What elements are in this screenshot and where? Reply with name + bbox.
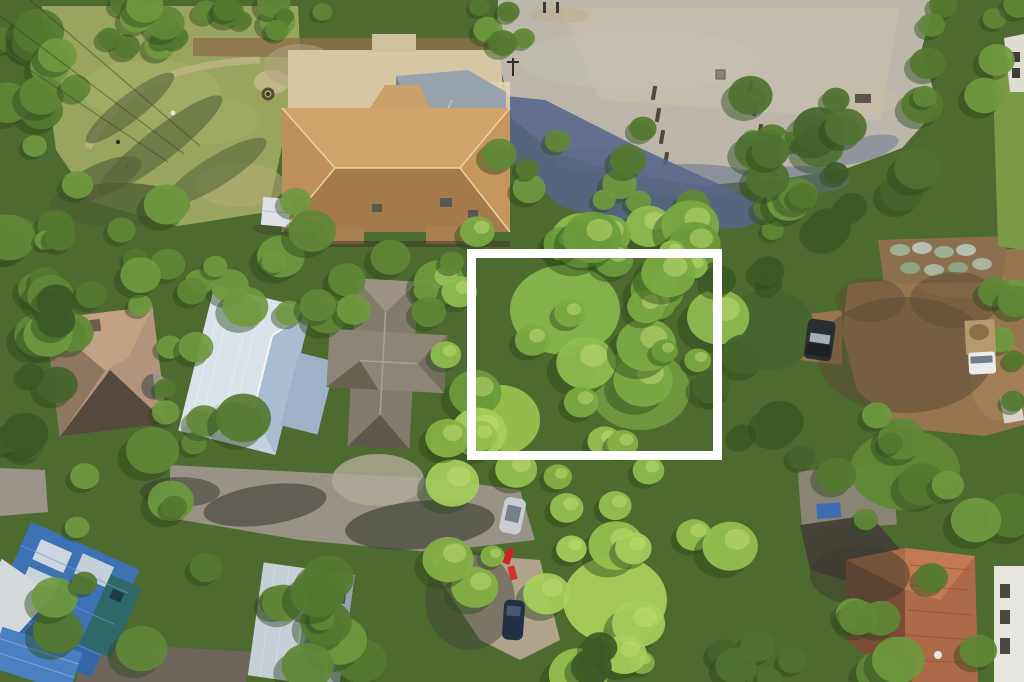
- tree-blob: [633, 607, 657, 627]
- window: [1000, 638, 1010, 654]
- tree-blob: [620, 640, 640, 657]
- aerial-photo-stage: [0, 0, 1024, 682]
- tree-blob: [477, 425, 492, 438]
- tree-blob: [728, 76, 772, 115]
- tree-blob: [751, 256, 784, 285]
- pad-stub: [372, 34, 416, 52]
- tree-blob: [872, 637, 925, 682]
- tree-blob: [918, 13, 945, 37]
- tree-blob: [62, 171, 93, 199]
- tree-blob: [568, 539, 582, 551]
- fence-post: [543, 2, 546, 13]
- car-windows: [506, 605, 521, 616]
- tree-blob: [22, 135, 47, 157]
- tree-blob: [497, 2, 520, 22]
- manhole-cover: [716, 70, 725, 79]
- tree-blob: [179, 332, 214, 363]
- blue-tarp: [816, 502, 841, 519]
- tree-blob: [223, 287, 269, 327]
- tree-blob: [443, 345, 457, 357]
- tree-blob: [1, 413, 48, 454]
- tree-blob: [312, 3, 332, 20]
- tree-blob: [262, 251, 287, 273]
- tree-blob: [516, 159, 539, 179]
- tree-blob: [154, 379, 176, 398]
- tree-blob: [722, 334, 768, 374]
- tree-blob: [932, 471, 964, 500]
- gravel-path-patch: [332, 454, 424, 506]
- tree-blob: [18, 364, 45, 387]
- tree-blob: [964, 78, 1004, 114]
- rooftop-hvac-unit: [372, 204, 382, 212]
- tree-blob: [612, 495, 627, 507]
- tree-blob: [45, 224, 75, 250]
- tree-blob: [662, 343, 674, 353]
- tree-blob: [161, 496, 187, 518]
- tree-blob: [38, 38, 77, 72]
- tree-blob: [751, 135, 789, 168]
- tree-blob: [289, 210, 336, 252]
- tree-blob: [70, 463, 99, 489]
- tree-blob: [412, 296, 447, 327]
- tree-blob: [76, 281, 107, 308]
- tree-blob: [778, 649, 806, 674]
- tree-blob: [144, 184, 190, 224]
- tree-blob: [490, 548, 501, 557]
- tree-blob: [337, 294, 372, 325]
- tree-blob: [894, 148, 941, 189]
- tree-blob: [690, 229, 713, 249]
- tree-blob: [216, 394, 271, 443]
- gravel-dirt-patch: [530, 7, 590, 23]
- tree-blob: [177, 278, 207, 305]
- white-flatbed-truck: [964, 319, 997, 374]
- tree-blob: [1001, 391, 1024, 412]
- fence-post: [556, 2, 559, 13]
- tree-blob: [190, 553, 223, 582]
- tree-blob: [915, 563, 948, 592]
- tree-blob: [37, 304, 75, 338]
- tree-blob: [126, 427, 179, 474]
- tree-blob: [72, 572, 98, 595]
- tree-blob: [470, 572, 491, 590]
- tree-blob: [817, 457, 857, 492]
- white-building-right: [994, 566, 1024, 682]
- dark-suv: [803, 318, 836, 362]
- dark-blue-car: [502, 599, 526, 640]
- tree-blob: [789, 183, 818, 208]
- tree-blob: [756, 401, 804, 443]
- windshield: [970, 355, 992, 363]
- gravel-worn-area: [520, 30, 760, 90]
- picnic-table: [855, 94, 871, 103]
- tree-blob: [443, 424, 463, 441]
- tree-blob: [488, 30, 517, 56]
- tree-blob: [555, 468, 568, 479]
- tree-blob: [203, 256, 227, 277]
- tree-blob: [695, 352, 707, 362]
- tree-blob: [692, 370, 730, 404]
- roof-vent: [934, 651, 942, 659]
- tree-blob: [825, 108, 867, 145]
- tree-blob: [951, 498, 1001, 542]
- tree-blob: [960, 634, 998, 667]
- tree-blob: [443, 544, 466, 563]
- tree-blob: [542, 579, 563, 597]
- tree-blob: [690, 524, 706, 538]
- window: [1000, 584, 1010, 598]
- tree-blob: [580, 344, 607, 367]
- tree-blob: [788, 445, 816, 470]
- window: [1000, 610, 1010, 624]
- tree-blob: [979, 44, 1015, 76]
- tree-blob: [291, 569, 345, 617]
- white-object-dot: [171, 111, 176, 116]
- street-stub-left: [0, 468, 48, 516]
- tree-blob: [120, 257, 161, 293]
- tree-blob: [152, 400, 180, 424]
- tree-blob: [482, 139, 517, 170]
- tree-blob: [854, 509, 878, 531]
- tree-blob: [447, 466, 471, 486]
- tree-blob: [620, 434, 634, 446]
- tree-blob: [107, 218, 135, 243]
- tree-blob: [645, 461, 659, 473]
- tree-blob: [806, 208, 851, 247]
- tree-blob: [1003, 350, 1024, 369]
- tree-blob: [529, 329, 545, 343]
- tree-blob: [328, 263, 366, 296]
- rooftop-hvac-unit: [440, 198, 452, 207]
- tree-blob: [299, 289, 336, 321]
- tree-blob: [65, 517, 90, 539]
- tree-blob: [61, 75, 91, 101]
- tree-blob: [862, 402, 892, 428]
- tree-blob: [440, 252, 464, 273]
- tree-blob: [116, 626, 168, 671]
- tree-blob: [265, 20, 289, 41]
- tree-blob: [593, 190, 616, 210]
- person-dot: [116, 140, 120, 144]
- tree-blob: [586, 219, 612, 241]
- tree-blob: [545, 130, 570, 152]
- tree-blob: [563, 497, 578, 510]
- tree-blob: [823, 162, 848, 184]
- tree-blob: [474, 221, 490, 234]
- tree-blob: [630, 537, 646, 551]
- aerial-photo: [0, 0, 1024, 682]
- tree-blob: [578, 391, 594, 404]
- tree-blob: [663, 256, 687, 277]
- tree-blob: [822, 88, 849, 112]
- tree-blob: [725, 529, 750, 550]
- tree-blob: [879, 433, 903, 454]
- tree-blob: [913, 86, 937, 107]
- tree-blob: [629, 117, 656, 141]
- tree-blob: [839, 600, 879, 635]
- tree-blob: [567, 303, 581, 315]
- tree-blob: [910, 48, 946, 80]
- tree-blob: [370, 240, 410, 275]
- tree-blob: [610, 144, 646, 176]
